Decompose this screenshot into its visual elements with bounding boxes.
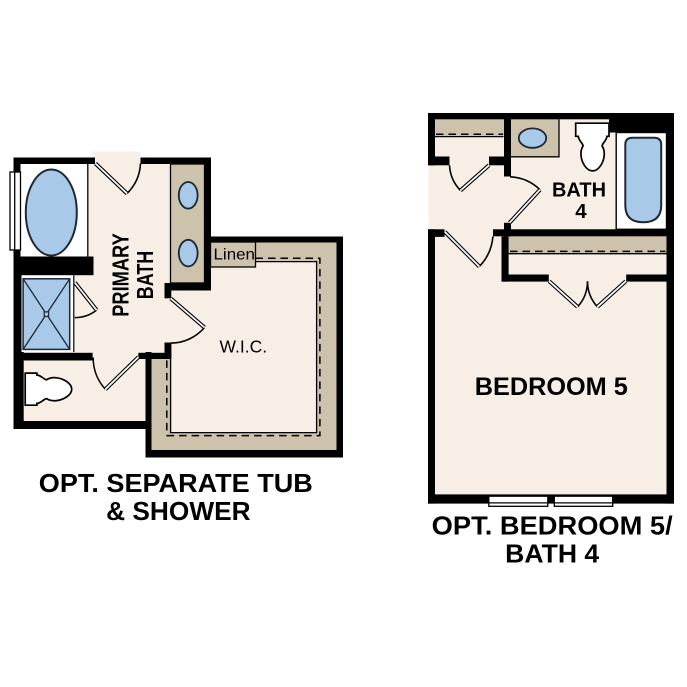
svg-text:BEDROOM 5: BEDROOM 5 (475, 373, 628, 401)
svg-text:W.I.C.: W.I.C. (219, 337, 267, 357)
svg-text:OPT. SEPARATE TUB: OPT. SEPARATE TUB (39, 468, 313, 498)
svg-text:4: 4 (575, 200, 587, 223)
svg-text:BATH: BATH (552, 179, 606, 202)
svg-text:Linen: Linen (214, 246, 256, 263)
svg-text:BATH: BATH (132, 251, 158, 300)
svg-text:OPT. BEDROOM 5/: OPT. BEDROOM 5/ (432, 511, 673, 541)
svg-text:PRIMARY: PRIMARY (108, 233, 134, 317)
svg-text:& SHOWER: & SHOWER (106, 496, 251, 526)
svg-text:BATH 4: BATH 4 (505, 539, 600, 569)
